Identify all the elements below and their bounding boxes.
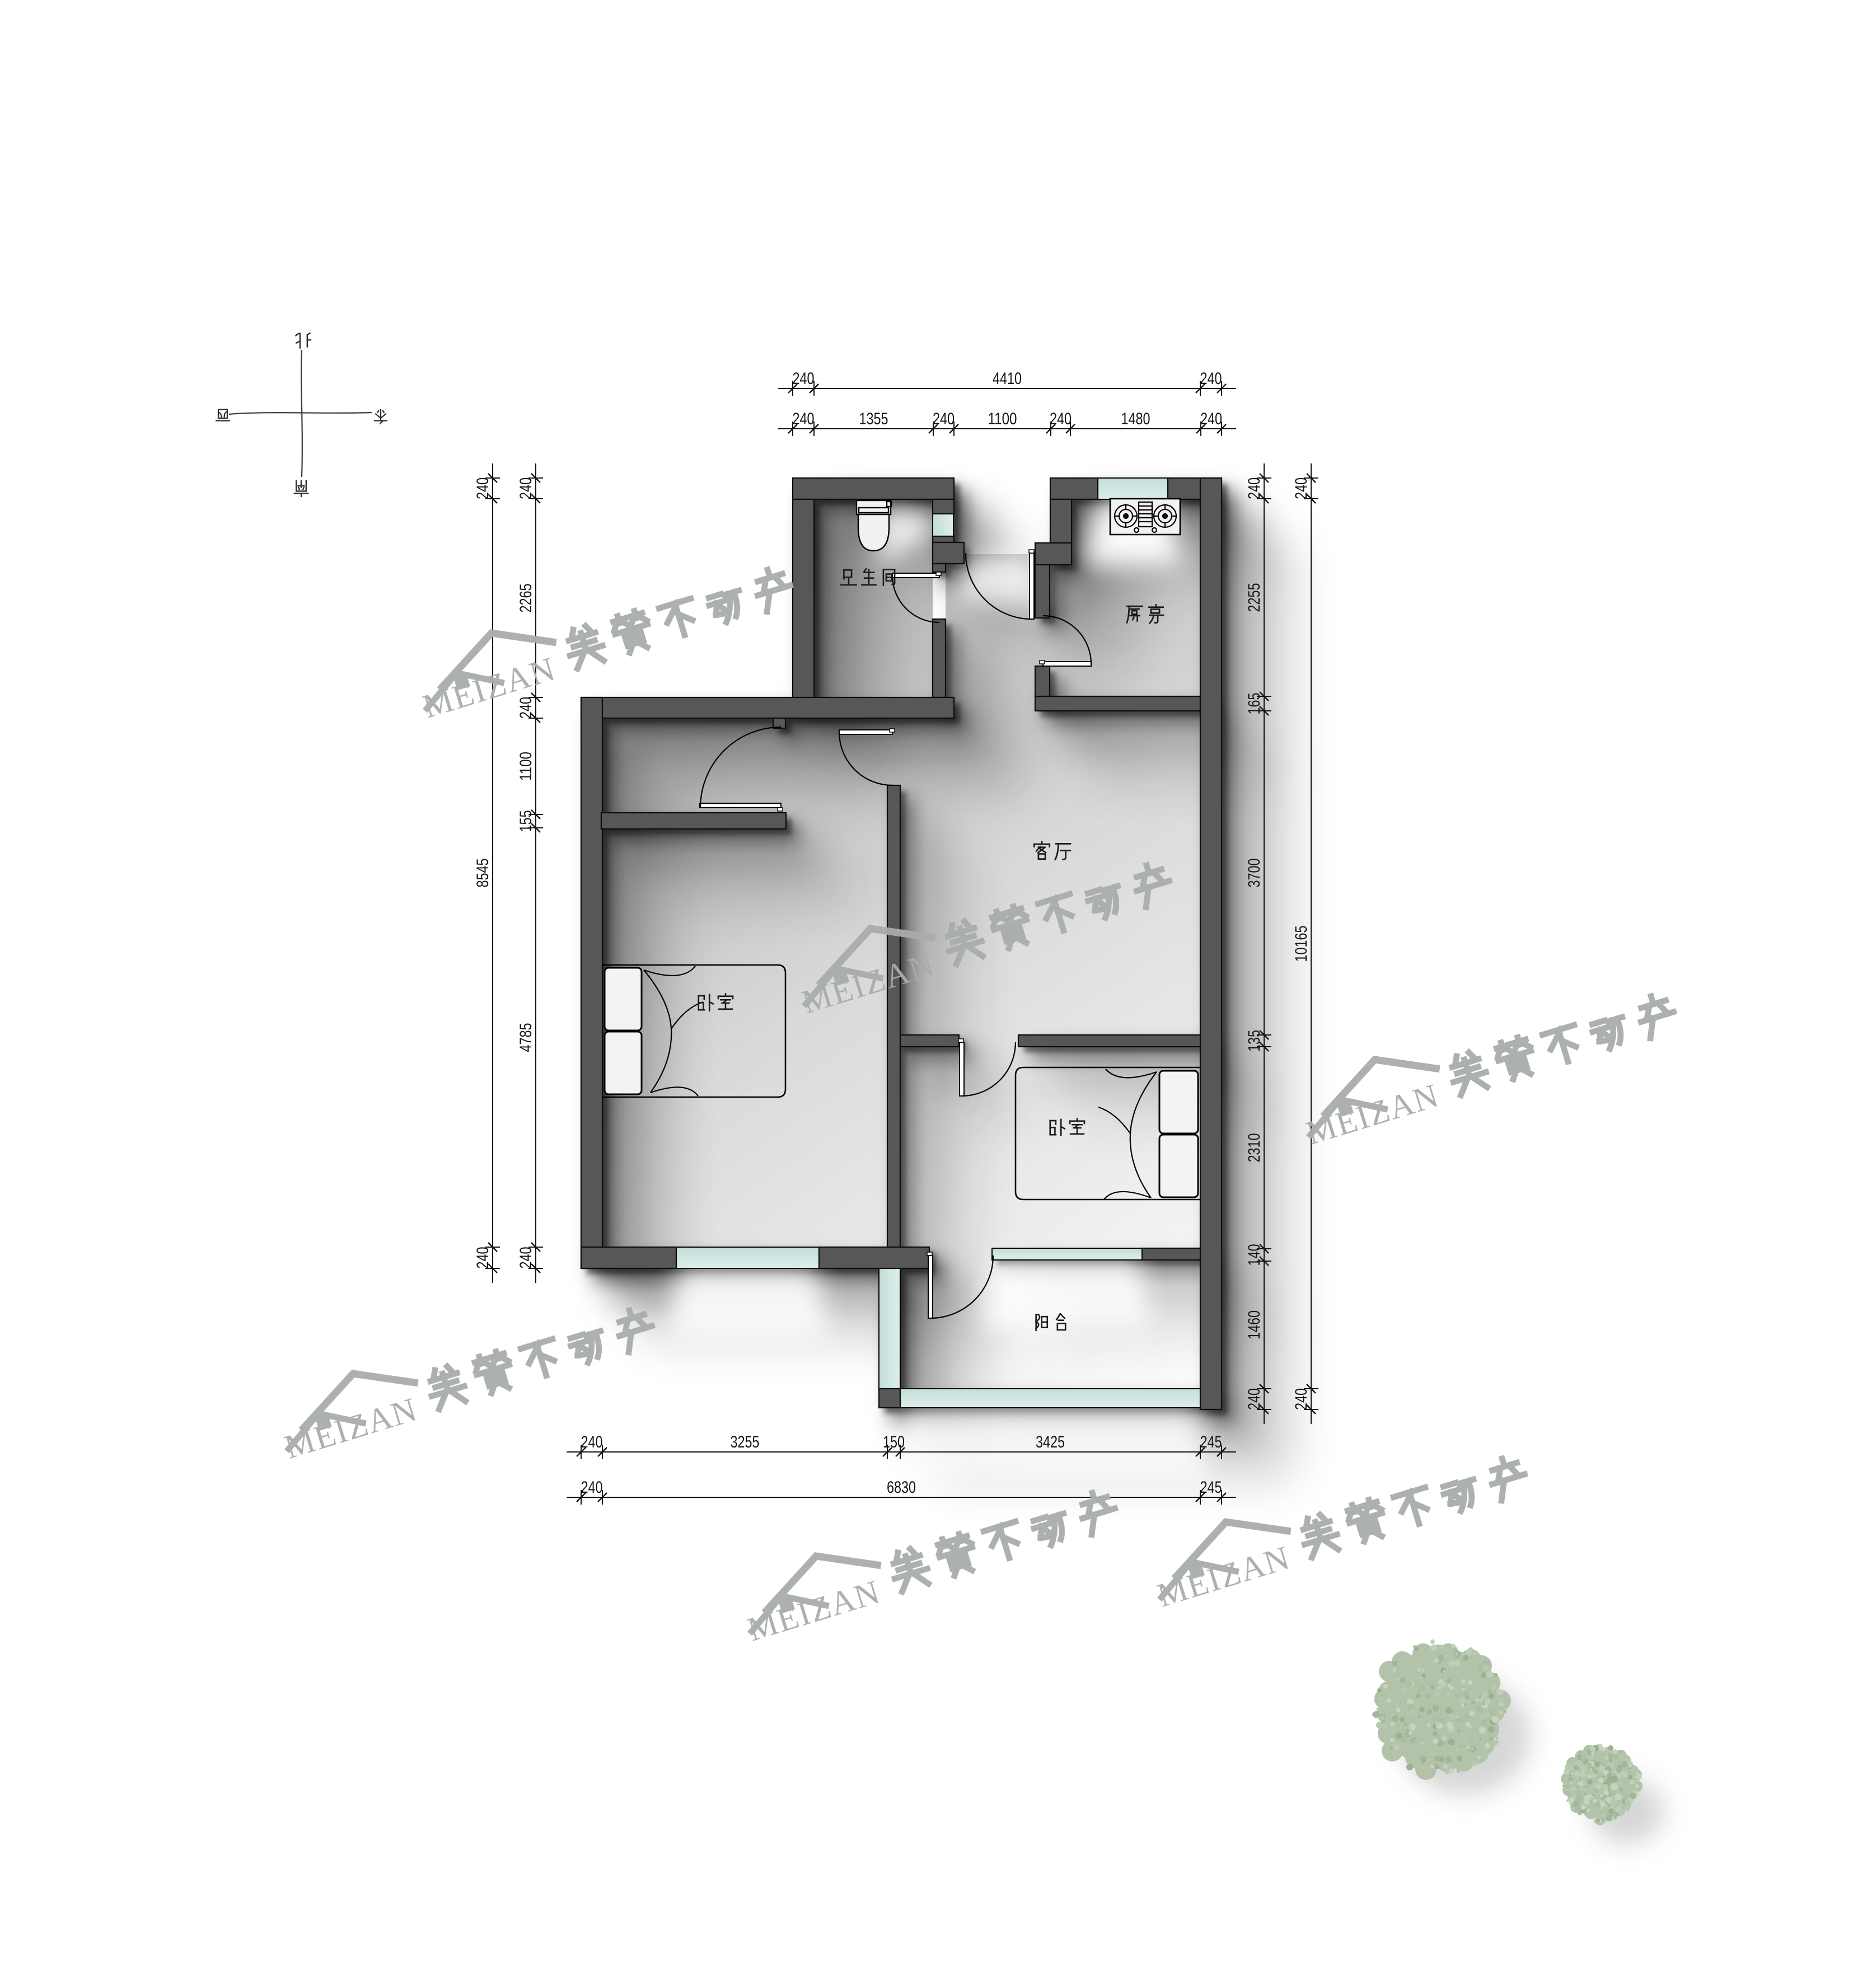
svg-text:1100: 1100	[988, 410, 1017, 428]
svg-text:240: 240	[517, 697, 535, 719]
svg-text:240: 240	[474, 477, 492, 499]
svg-text:155: 155	[517, 811, 535, 832]
svg-text:240: 240	[1200, 369, 1222, 388]
svg-text:10165: 10165	[1292, 926, 1311, 962]
svg-text:150: 150	[883, 1433, 905, 1451]
svg-text:4410: 4410	[993, 369, 1022, 388]
svg-text:245: 245	[1200, 1433, 1222, 1451]
svg-text:165: 165	[1245, 693, 1264, 715]
svg-text:1355: 1355	[859, 410, 888, 428]
svg-text:3425: 3425	[1036, 1433, 1065, 1451]
svg-text:3255: 3255	[731, 1433, 760, 1451]
svg-text:8545: 8545	[474, 859, 492, 888]
svg-text:240: 240	[1245, 1388, 1264, 1410]
svg-text:3700: 3700	[1245, 859, 1264, 888]
svg-text:1100: 1100	[517, 752, 535, 781]
svg-text:240: 240	[1050, 410, 1072, 428]
svg-text:240: 240	[517, 477, 535, 499]
svg-text:240: 240	[1245, 477, 1264, 499]
svg-text:135: 135	[1245, 1030, 1264, 1052]
svg-text:2265: 2265	[517, 584, 535, 613]
svg-text:240: 240	[793, 410, 815, 428]
svg-text:240: 240	[474, 1247, 492, 1269]
svg-text:240: 240	[933, 410, 955, 428]
svg-text:140: 140	[1245, 1244, 1264, 1266]
svg-text:240: 240	[581, 1433, 603, 1451]
svg-text:240: 240	[581, 1478, 603, 1497]
svg-text:1460: 1460	[1245, 1310, 1264, 1339]
svg-text:1480: 1480	[1121, 410, 1150, 428]
svg-text:2255: 2255	[1245, 583, 1264, 612]
svg-text:6830: 6830	[887, 1478, 916, 1497]
svg-text:240: 240	[1292, 1388, 1311, 1410]
svg-text:240: 240	[1200, 410, 1222, 428]
svg-text:245: 245	[1200, 1478, 1222, 1497]
svg-text:2310: 2310	[1245, 1133, 1264, 1163]
svg-text:4785: 4785	[517, 1023, 535, 1052]
svg-text:240: 240	[793, 369, 815, 388]
svg-text:240: 240	[517, 1247, 535, 1269]
svg-text:240: 240	[1292, 477, 1311, 499]
